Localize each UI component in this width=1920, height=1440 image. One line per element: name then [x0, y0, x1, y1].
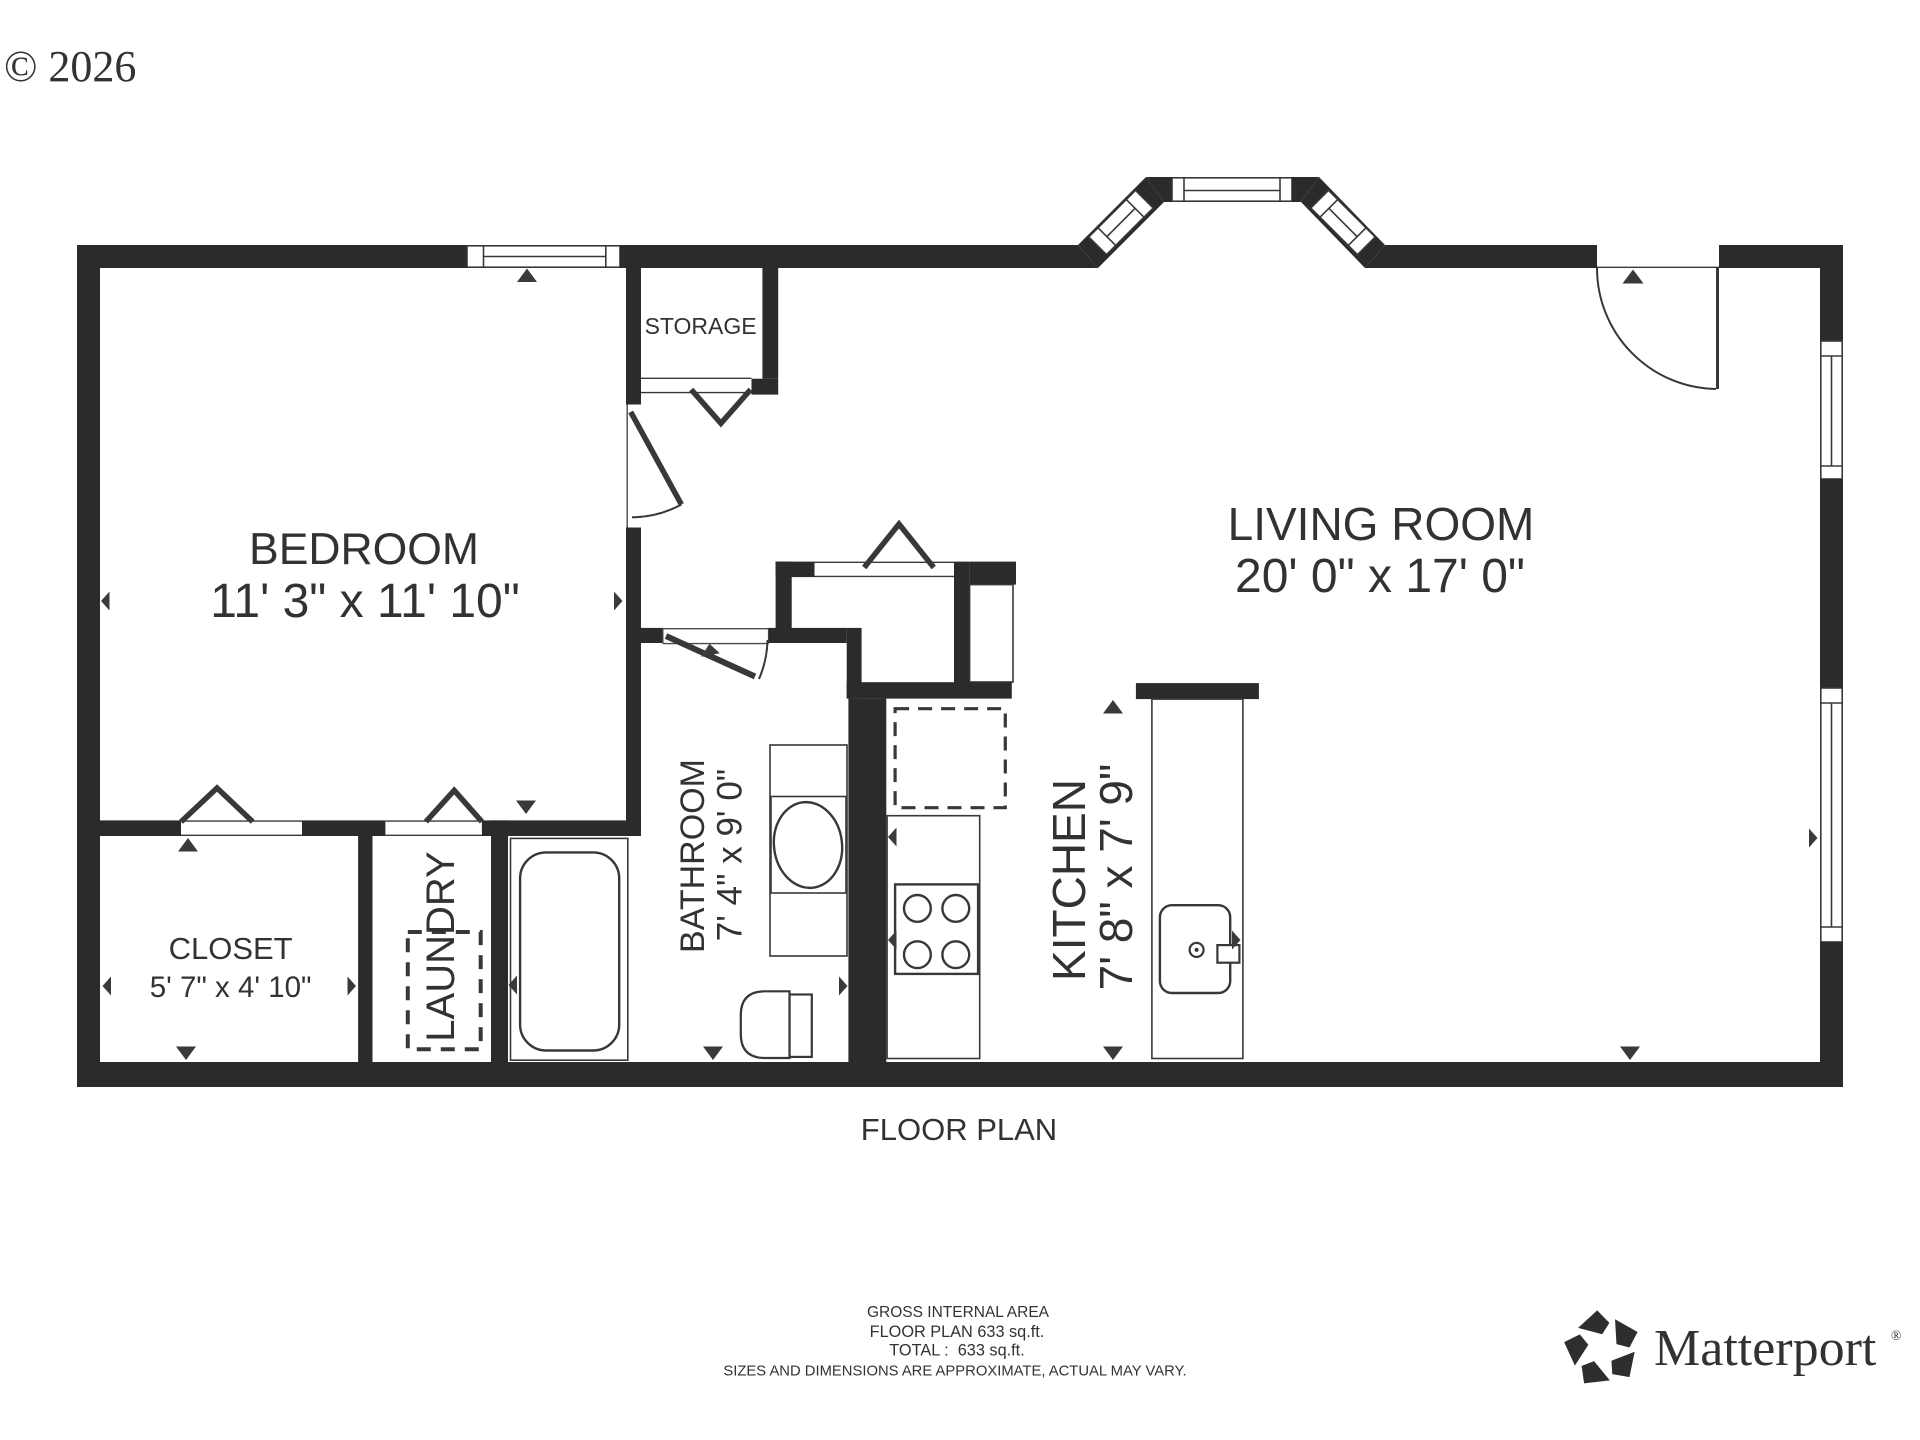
svg-text:GROSS INTERNAL AREA: GROSS INTERNAL AREA — [867, 1304, 1050, 1321]
svg-text:LIVING ROOM: LIVING ROOM — [1228, 498, 1535, 550]
svg-text:11' 3" x 11' 10": 11' 3" x 11' 10" — [210, 575, 520, 628]
svg-text:BATHROOM: BATHROOM — [674, 759, 712, 953]
svg-text:CLOSET: CLOSET — [169, 931, 293, 966]
svg-text:© 2026: © 2026 — [4, 42, 136, 91]
svg-text:5' 7" x 4' 10": 5' 7" x 4' 10" — [150, 971, 312, 1004]
svg-text:STORAGE: STORAGE — [645, 313, 757, 339]
svg-text:LAUNDRY: LAUNDRY — [419, 851, 463, 1041]
svg-text:BEDROOM: BEDROOM — [249, 525, 479, 574]
svg-text:Matterport: Matterport — [1654, 1320, 1877, 1377]
svg-text:7' 4" x 9' 0": 7' 4" x 9' 0" — [711, 769, 750, 941]
svg-text:20' 0" x 17' 0": 20' 0" x 17' 0" — [1235, 550, 1525, 603]
svg-text:TOTAL : 633 sq.ft.: TOTAL : 633 sq.ft. — [889, 1342, 1024, 1360]
svg-text:SIZES AND DIMENSIONS ARE APPRO: SIZES AND DIMENSIONS ARE APPROXIMATE, AC… — [723, 1364, 1186, 1380]
svg-text:®: ® — [1891, 1328, 1901, 1343]
svg-text:7' 8" x 7' 9": 7' 8" x 7' 9" — [1090, 764, 1142, 991]
svg-text:FLOOR PLAN 633 sq.ft.: FLOOR PLAN 633 sq.ft. — [870, 1323, 1045, 1341]
svg-text:FLOOR PLAN: FLOOR PLAN — [861, 1112, 1057, 1147]
svg-text:KITCHEN: KITCHEN — [1043, 779, 1095, 981]
